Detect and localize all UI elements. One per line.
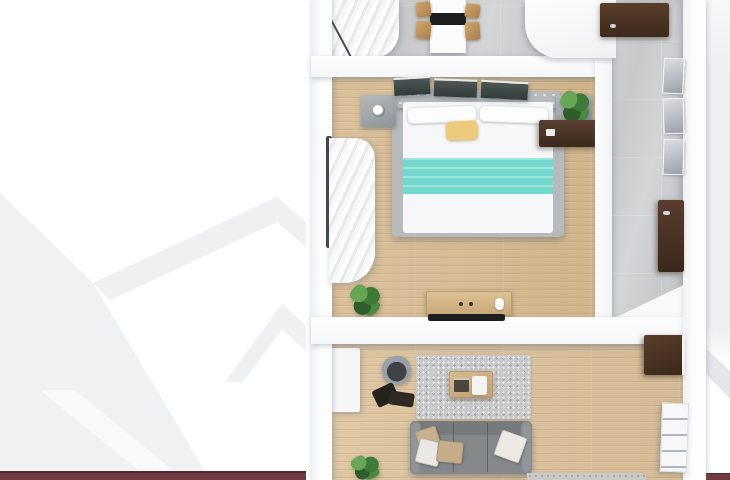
wall-art-panel	[394, 76, 431, 96]
tall-cabinet	[658, 200, 684, 272]
accent-bar-bottom-left	[0, 471, 306, 480]
tv-soundbar	[428, 314, 505, 321]
wall-dining-bedroom	[311, 56, 601, 77]
potted-plant	[349, 283, 381, 317]
teal-blanket	[403, 158, 553, 194]
table-lamp	[372, 104, 385, 117]
yellow-throw-pillow	[446, 120, 479, 140]
mirror-panel	[662, 98, 684, 135]
entry-door	[600, 3, 669, 37]
mirror-panel	[662, 139, 684, 176]
cabinet-handle	[663, 211, 670, 215]
white-shelf-unit	[660, 403, 689, 473]
bedroom-window-curtain	[329, 138, 375, 283]
table-runner	[430, 13, 466, 25]
white-vase	[495, 298, 504, 310]
accent-bar-bottom-right	[704, 473, 730, 480]
white-sideboard	[330, 348, 360, 412]
apartment-plan	[306, 0, 706, 480]
dining-chair	[415, 1, 431, 17]
wall-art-panel	[434, 78, 478, 97]
dining-chair	[415, 20, 432, 39]
coffee-table	[449, 371, 493, 398]
sofa-cushion	[436, 440, 464, 465]
dining-chair	[464, 3, 481, 19]
console-knob	[469, 302, 473, 306]
dining-table	[430, 0, 466, 53]
wall-bedroom-hallway	[595, 56, 612, 326]
throw-fold	[388, 390, 415, 407]
dining-window-curtain	[327, 0, 399, 58]
dining-chair	[464, 21, 480, 40]
potted-plant	[559, 89, 590, 124]
desk-paper	[546, 129, 555, 136]
mirror-panels	[663, 58, 684, 178]
dark-side-desk	[539, 120, 600, 147]
mirror-panel	[662, 57, 685, 94]
cut-off-bench	[527, 473, 646, 480]
potted-plant	[349, 455, 381, 480]
white-tray	[472, 376, 487, 395]
nightstand-left	[361, 95, 396, 127]
dark-wall-cabinet	[644, 335, 685, 375]
dark-lounge-throw	[374, 384, 416, 410]
floor-plan-render	[0, 0, 730, 480]
sofa	[410, 421, 532, 474]
tv-console	[426, 291, 512, 316]
wall-bedroom-living	[311, 317, 685, 344]
wall-art-panel	[481, 80, 529, 100]
console-knob	[459, 302, 463, 306]
book-stack	[454, 378, 469, 392]
door-handle	[610, 24, 616, 28]
